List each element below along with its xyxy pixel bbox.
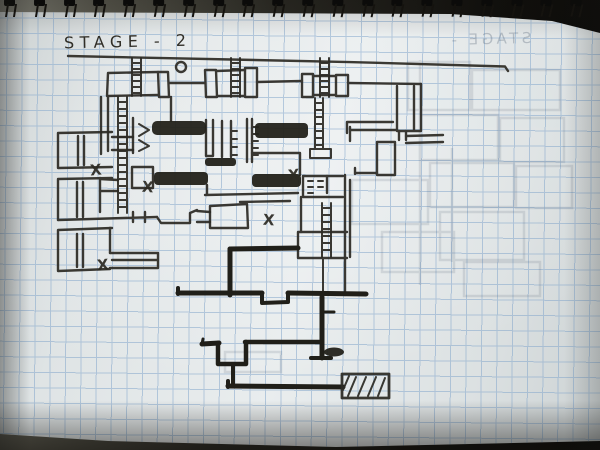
x-mark: X — [89, 161, 102, 180]
spiral-coil — [450, 0, 464, 20]
spiral-coil — [391, 0, 405, 20]
spiral-coil — [64, 0, 77, 20]
exit-hatched-block — [342, 374, 389, 398]
circle-marker — [176, 62, 186, 72]
spiral-coil — [183, 0, 197, 20]
spiral-coil — [4, 0, 17, 20]
x-mark: X — [96, 256, 109, 275]
x-mark: X — [141, 178, 154, 197]
x-mark: X — [262, 211, 275, 230]
spiral-coil — [93, 0, 106, 20]
spiral-coil — [272, 0, 286, 20]
showthrough-ghost-lines — [225, 60, 572, 372]
x-mark: X — [287, 166, 300, 185]
spiral-coil — [34, 0, 47, 20]
page-title: STAGE - 2 — [64, 31, 192, 53]
spiral-coil — [361, 0, 375, 20]
spiral-coil — [480, 0, 494, 20]
spiral-coil — [331, 0, 345, 20]
spiral-coil — [569, 0, 584, 21]
ghost-mirrored-title: STAGE - — [448, 29, 532, 49]
graph-paper: STAGE - STAGE - 2 — [0, 0, 600, 450]
spiral-coil — [540, 0, 555, 20]
spiral-coil — [242, 0, 256, 20]
notebook-photo: STAGE - STAGE - 2 — [0, 0, 600, 450]
spiral-coil — [123, 0, 136, 20]
spiral-coil — [153, 0, 166, 20]
spiral-coil — [421, 0, 435, 20]
spiral-coil — [302, 0, 316, 20]
spiral-coil — [212, 0, 226, 20]
spiral-coil — [510, 0, 525, 20]
stage-map-drawing — [0, 0, 600, 450]
